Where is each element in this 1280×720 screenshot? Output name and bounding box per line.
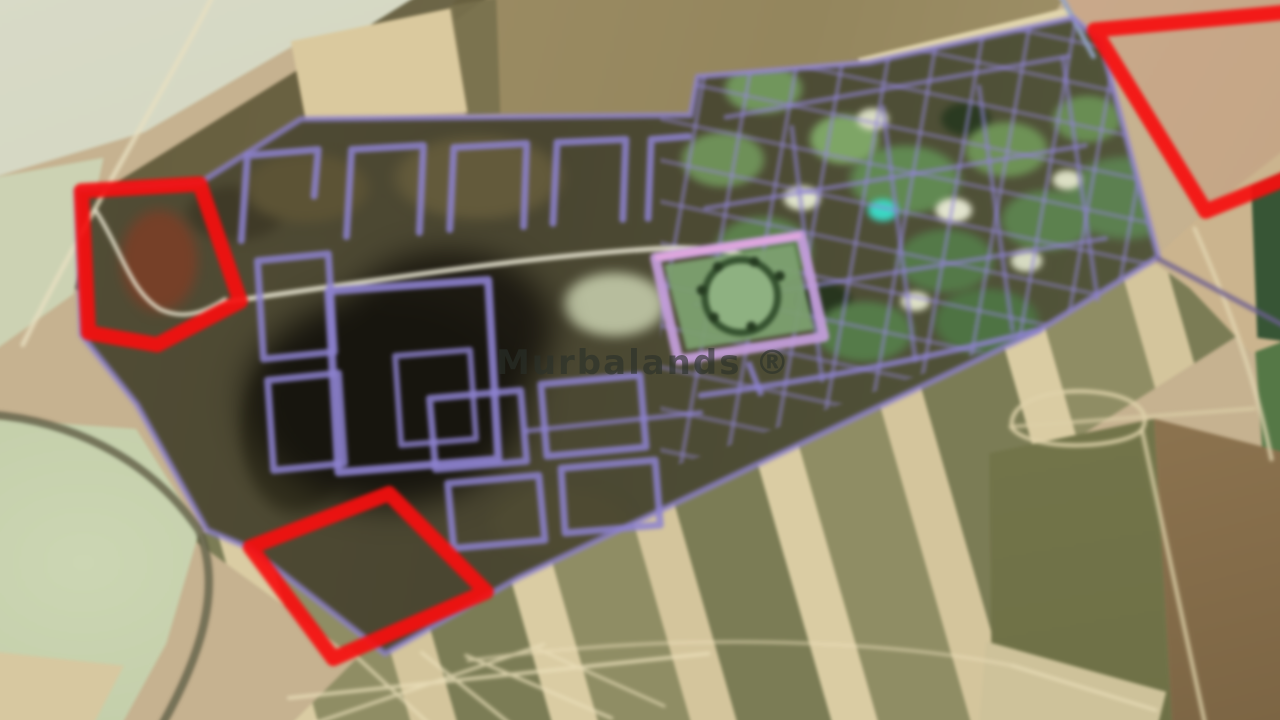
watermark: Murbalands ® [496, 346, 791, 380]
highlight-outline-west-plot [81, 184, 240, 345]
highway-interchange [289, 642, 1156, 720]
highlight-outline-northeast-plot [1094, 10, 1280, 211]
satellite-photo: Murbalands ® [0, 0, 1280, 720]
